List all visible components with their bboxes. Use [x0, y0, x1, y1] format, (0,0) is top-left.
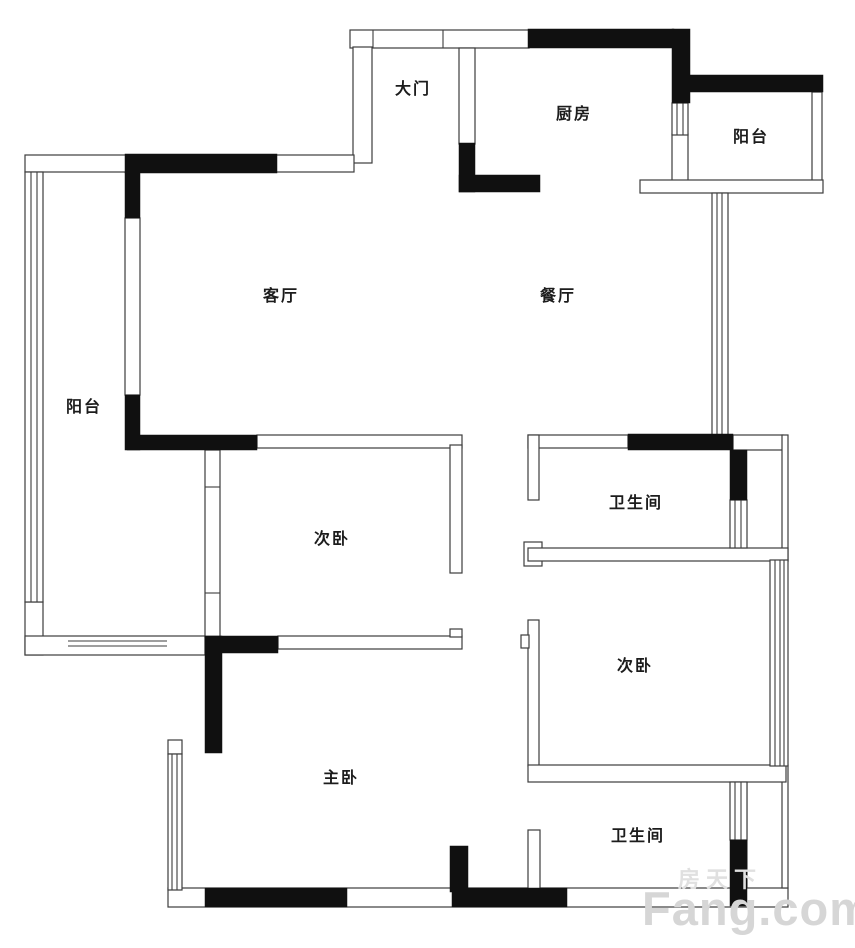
- wall-segment: [628, 434, 733, 450]
- room-label-living-room: 客厅: [263, 286, 299, 305]
- wall-segment: [528, 765, 786, 782]
- room-label-bedroom-second-west: 次卧: [314, 529, 350, 548]
- room-label-dining-room: 餐厅: [539, 286, 576, 305]
- wall-segment: [782, 765, 788, 888]
- room-label-bathroom-north: 卫生间: [609, 493, 663, 512]
- wall-segment: [452, 888, 567, 907]
- room-label-balcony-north: 阳台: [733, 127, 769, 146]
- wall-segment: [672, 103, 688, 135]
- wall-segment: [125, 218, 140, 395]
- watermark: 房天下 Fang.com: [642, 867, 855, 935]
- wall-segment: [521, 635, 529, 648]
- wall-segment: [528, 435, 539, 500]
- wall-segment: [528, 830, 540, 890]
- wall-segment: [125, 172, 140, 218]
- wall-segment: [350, 30, 529, 48]
- wall-segment: [168, 740, 182, 754]
- room-label-master-bedroom: 主卧: [323, 768, 359, 787]
- wall-segment: [25, 172, 43, 602]
- room-label-bathroom-south: 卫生间: [611, 826, 665, 845]
- wall-segment: [733, 435, 783, 450]
- wall-segment: [205, 888, 347, 907]
- wall-segment: [459, 175, 540, 192]
- wall-segment: [353, 47, 372, 163]
- wall-segment: [687, 75, 823, 92]
- wall-segment: [528, 620, 539, 766]
- room-label-balcony-west: 阳台: [66, 397, 102, 416]
- wall-segment: [127, 435, 257, 450]
- watermark-brand-text: Fang.com: [642, 882, 855, 935]
- wall-segment: [278, 636, 462, 649]
- room-label-kitchen: 厨房: [556, 104, 592, 123]
- wall-segment: [730, 782, 747, 840]
- wall-segment: [672, 134, 688, 181]
- wall-segment: [712, 193, 728, 435]
- wall-segment: [770, 560, 788, 766]
- wall-segment: [459, 48, 475, 144]
- room-labels: 大门 厨房 阳台 客厅 餐厅 阳台 次卧 卫生间 次卧 主卧 卫生间: [66, 79, 769, 845]
- floorplan-canvas: 大门 厨房 阳台 客厅 餐厅 阳台 次卧 卫生间 次卧 主卧 卫生间 房天下 F…: [0, 0, 855, 948]
- wall-segment: [640, 180, 823, 193]
- wall-segment: [812, 92, 822, 184]
- wall-segment: [450, 445, 462, 573]
- wall-segment: [257, 435, 462, 448]
- wall-segment: [730, 500, 747, 548]
- wall-segment: [168, 754, 182, 890]
- wall-segment: [528, 435, 628, 448]
- wall-segment: [528, 548, 788, 561]
- wall-segment: [782, 435, 788, 561]
- wall-segment: [528, 29, 674, 48]
- wall-segment: [125, 154, 277, 173]
- room-label-bedroom-second-east: 次卧: [617, 656, 653, 675]
- wall-segment: [450, 846, 468, 892]
- wall-segment: [205, 450, 220, 637]
- floorplan-page: 大门 厨房 阳台 客厅 餐厅 阳台 次卧 卫生间 次卧 主卧 卫生间 房天下 F…: [0, 0, 855, 948]
- room-label-entrance: 大门: [395, 79, 431, 98]
- wall-segment: [205, 636, 222, 753]
- wall-segment: [450, 629, 462, 637]
- wall-segment: [730, 450, 747, 500]
